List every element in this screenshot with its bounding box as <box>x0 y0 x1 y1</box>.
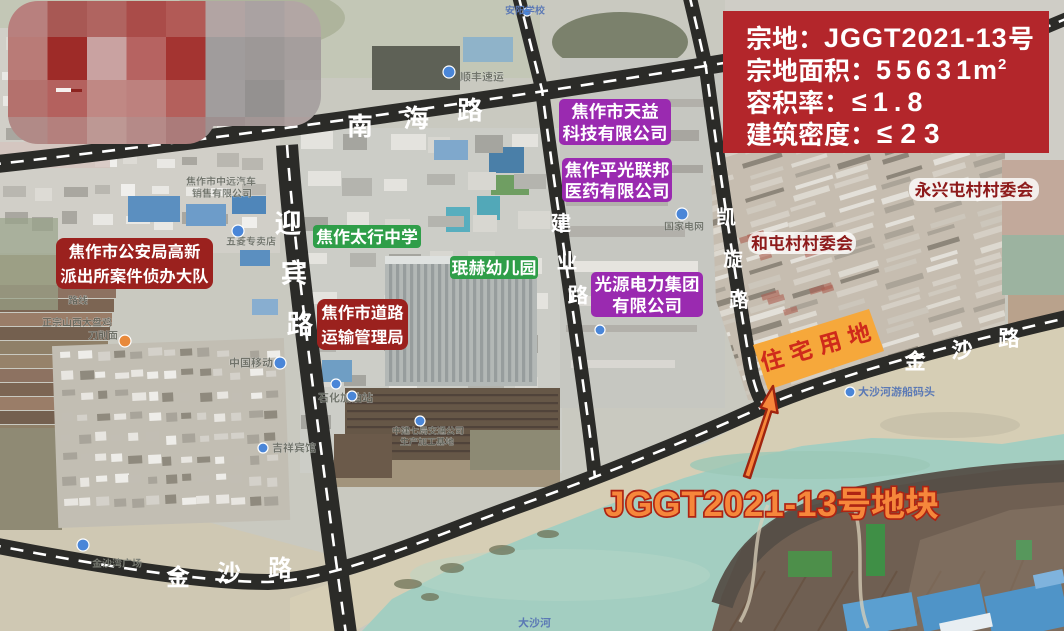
svg-text:≤1.8: ≤1.8 <box>852 87 928 117</box>
svg-text:2: 2 <box>998 56 1006 73</box>
svg-text:≤23: ≤23 <box>877 118 948 149</box>
svg-text:55631: 55631 <box>876 55 976 85</box>
svg-text:m: m <box>973 55 997 85</box>
svg-text:JGGT2021-13: JGGT2021-13 <box>605 485 838 524</box>
svg-text:JGGT2021-13: JGGT2021-13 <box>824 23 1008 53</box>
